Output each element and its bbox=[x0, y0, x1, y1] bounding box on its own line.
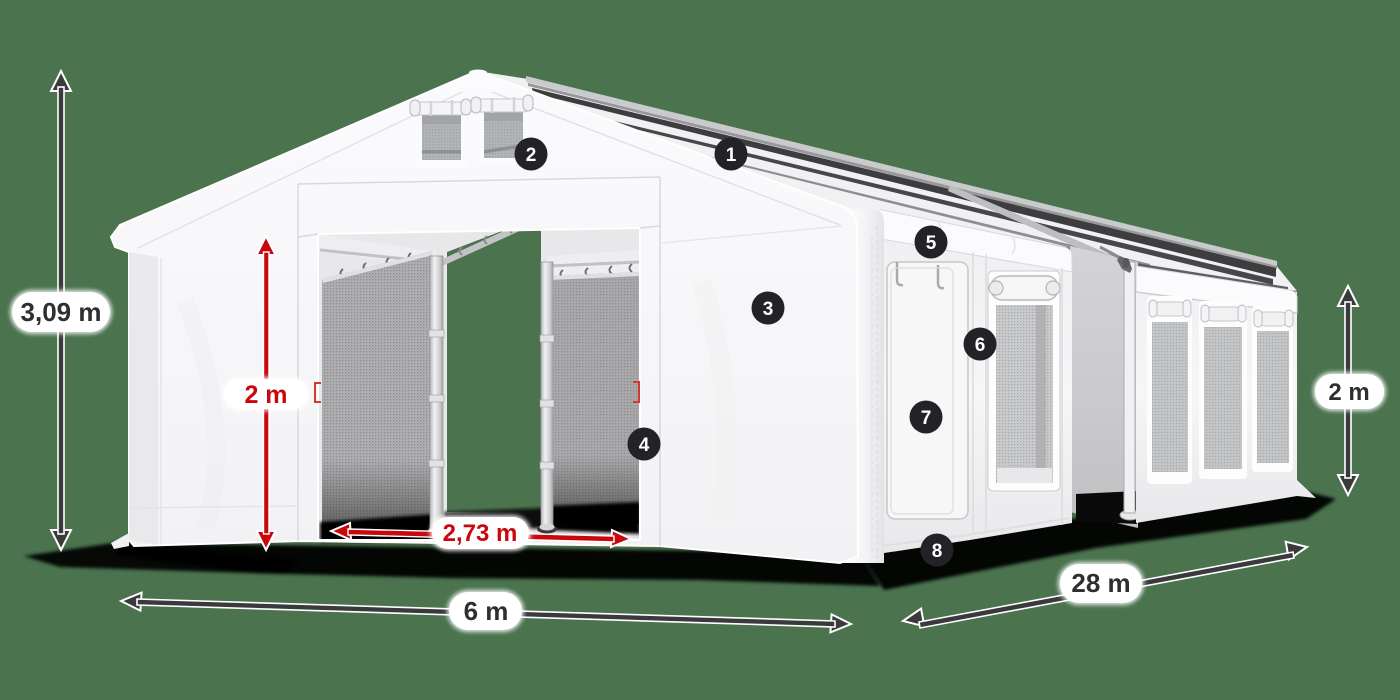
svg-text:3: 3 bbox=[763, 299, 774, 320]
svg-text:1: 1 bbox=[726, 145, 737, 166]
svg-text:2 m: 2 m bbox=[1328, 379, 1369, 406]
svg-text:4: 4 bbox=[639, 435, 650, 456]
svg-text:6: 6 bbox=[975, 335, 986, 356]
svg-text:2 m: 2 m bbox=[244, 381, 287, 409]
svg-text:7: 7 bbox=[921, 408, 932, 429]
svg-text:28 m: 28 m bbox=[1071, 568, 1130, 598]
svg-text:2,73 m: 2,73 m bbox=[443, 520, 518, 547]
svg-text:8: 8 bbox=[932, 541, 943, 562]
svg-text:6 m: 6 m bbox=[464, 596, 509, 626]
svg-text:3,09 m: 3,09 m bbox=[21, 297, 102, 327]
svg-text:5: 5 bbox=[926, 233, 937, 254]
svg-text:2: 2 bbox=[526, 145, 537, 166]
